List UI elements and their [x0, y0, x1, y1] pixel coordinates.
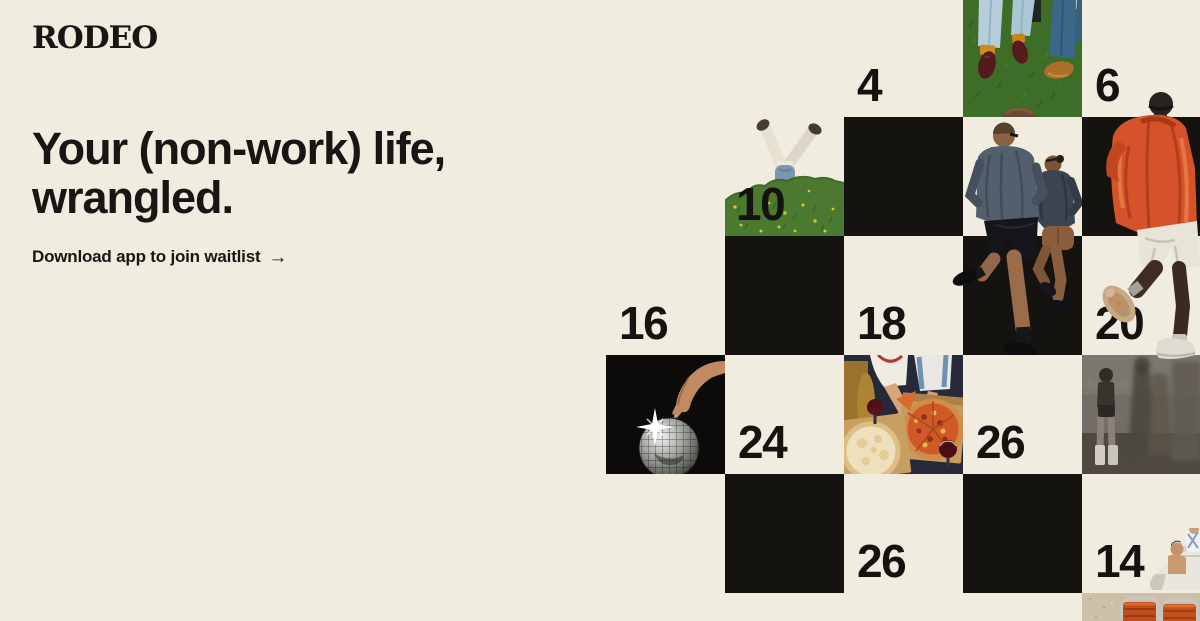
cutout-boat — [1146, 528, 1200, 593]
calendar-black-cell — [725, 474, 844, 593]
pizza-night-image — [844, 355, 963, 474]
photo-pizza-night — [844, 355, 963, 474]
calendar-black-cell — [963, 474, 1082, 593]
photo-festival-crowd — [1082, 355, 1200, 474]
festival-crowd-image — [1082, 355, 1200, 474]
calendar-day-26-second: 26 — [857, 538, 905, 584]
runner-orange-image — [1085, 88, 1200, 370]
cutout-runner-orange — [1085, 88, 1200, 370]
calendar-day-18: 18 — [857, 300, 905, 346]
photo-legs-on-grass — [963, 0, 1082, 117]
photo-beach-chairs — [1082, 593, 1200, 621]
joggers-image — [950, 117, 1082, 355]
rodeo-landing-page: RODEO Your (non-work) life,wrangled. Dow… — [0, 0, 1200, 621]
calendar-day-10: 10 — [736, 181, 784, 227]
photo-disco-ball — [606, 355, 725, 474]
calendar-day-14: 14 — [1095, 538, 1143, 584]
boat-image — [1146, 528, 1200, 593]
calendar-day-4: 4 — [857, 62, 881, 108]
calendar-day-26: 26 — [976, 419, 1024, 465]
cutout-joggers — [950, 117, 1082, 355]
legs-on-grass-image — [963, 0, 1082, 117]
calendar-day-16: 16 — [619, 300, 667, 346]
calendar-black-cell — [844, 117, 963, 236]
calendar-day-24: 24 — [738, 419, 786, 465]
disco-ball-image — [606, 355, 725, 474]
beach-chairs-image — [1082, 593, 1200, 621]
calendar-collage: 4 6 10 16 18 20 24 26 26 14 — [0, 0, 1200, 621]
calendar-black-cell — [725, 236, 844, 355]
